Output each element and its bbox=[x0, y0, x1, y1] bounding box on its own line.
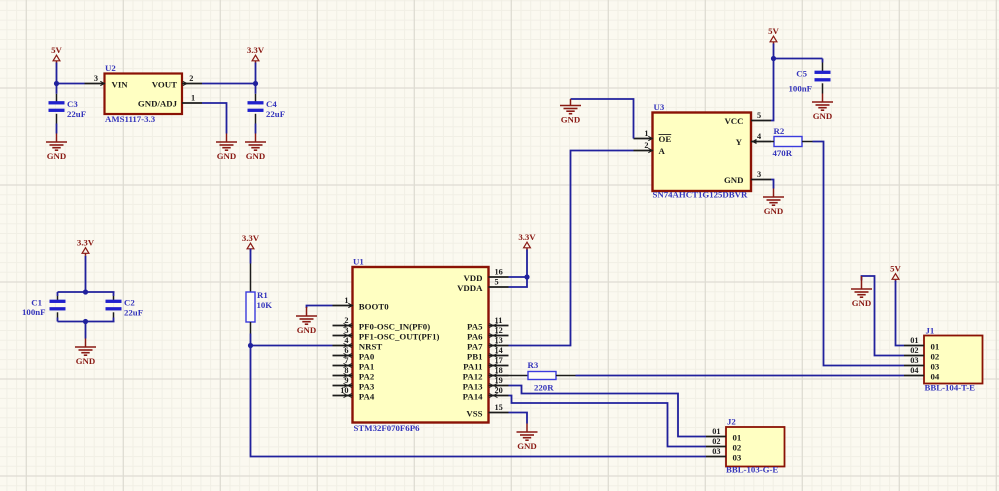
svg-text:PA1: PA1 bbox=[359, 362, 374, 372]
svg-text:GND: GND bbox=[852, 298, 872, 308]
svg-text:PA13: PA13 bbox=[463, 382, 483, 392]
svg-text:VDDA: VDDA bbox=[457, 283, 483, 293]
svg-text:SN74AHCT1G125DBVR: SN74AHCT1G125DBVR bbox=[653, 190, 748, 200]
svg-text:04: 04 bbox=[931, 372, 940, 382]
svg-text:11: 11 bbox=[495, 316, 503, 325]
svg-text:1: 1 bbox=[644, 129, 648, 138]
svg-text:4: 4 bbox=[344, 336, 348, 345]
svg-text:2: 2 bbox=[644, 141, 648, 150]
svg-text:02: 02 bbox=[910, 346, 918, 355]
svg-text:5: 5 bbox=[757, 111, 761, 120]
svg-text:3: 3 bbox=[757, 170, 761, 179]
svg-text:22uF: 22uF bbox=[266, 109, 285, 119]
svg-text:13: 13 bbox=[495, 336, 503, 345]
svg-text:U1: U1 bbox=[353, 257, 364, 267]
svg-text:PA12: PA12 bbox=[463, 372, 483, 382]
svg-text:20: 20 bbox=[495, 386, 503, 395]
svg-text:C3: C3 bbox=[67, 99, 78, 109]
svg-text:01: 01 bbox=[712, 427, 720, 436]
svg-text:NRST: NRST bbox=[359, 342, 383, 352]
svg-text:14: 14 bbox=[495, 346, 503, 355]
svg-text:GND/ADJ: GND/ADJ bbox=[138, 99, 178, 109]
svg-text:GND: GND bbox=[246, 151, 266, 161]
svg-text:A: A bbox=[659, 146, 666, 156]
svg-text:BOOT0: BOOT0 bbox=[359, 302, 389, 312]
svg-text:R1: R1 bbox=[257, 290, 268, 300]
svg-text:22uF: 22uF bbox=[124, 307, 143, 317]
svg-text:R3: R3 bbox=[528, 360, 539, 370]
svg-text:PF1-OSC_OUT(PF1): PF1-OSC_OUT(PF1) bbox=[359, 332, 440, 342]
svg-text:10K: 10K bbox=[257, 300, 273, 310]
svg-text:PA6: PA6 bbox=[467, 332, 483, 342]
svg-text:VSS: VSS bbox=[466, 409, 482, 419]
svg-text:02: 02 bbox=[931, 352, 940, 362]
svg-text:2: 2 bbox=[344, 316, 348, 325]
svg-text:17: 17 bbox=[495, 356, 503, 365]
svg-text:GND: GND bbox=[297, 325, 317, 335]
svg-text:GND: GND bbox=[517, 441, 537, 451]
svg-text:03: 03 bbox=[712, 447, 720, 456]
svg-text:100nF: 100nF bbox=[789, 83, 812, 93]
svg-text:PA11: PA11 bbox=[463, 362, 482, 372]
svg-text:6: 6 bbox=[344, 346, 348, 355]
svg-text:STM32F070F6P6: STM32F070F6P6 bbox=[354, 423, 421, 433]
svg-text:3.3V: 3.3V bbox=[77, 238, 95, 248]
svg-text:BBL-104-T-E: BBL-104-T-E bbox=[925, 383, 976, 393]
svg-text:01: 01 bbox=[910, 336, 918, 345]
svg-text:15: 15 bbox=[495, 403, 503, 412]
svg-text:03: 03 bbox=[931, 362, 940, 372]
svg-text:12: 12 bbox=[495, 326, 503, 335]
svg-text:GND: GND bbox=[813, 111, 833, 121]
svg-text:PA3: PA3 bbox=[359, 382, 375, 392]
svg-text:5: 5 bbox=[495, 277, 499, 286]
svg-text:220R: 220R bbox=[534, 383, 554, 393]
svg-text:VIN: VIN bbox=[112, 80, 129, 90]
svg-text:3: 3 bbox=[94, 74, 98, 83]
svg-text:01: 01 bbox=[931, 342, 940, 352]
svg-text:PB1: PB1 bbox=[467, 352, 483, 362]
svg-text:GND: GND bbox=[76, 356, 96, 366]
svg-text:GND: GND bbox=[561, 115, 581, 125]
svg-text:VOUT: VOUT bbox=[152, 80, 177, 90]
svg-text:2: 2 bbox=[189, 74, 193, 83]
svg-text:3.3V: 3.3V bbox=[242, 233, 260, 243]
svg-text:470R: 470R bbox=[773, 148, 793, 158]
svg-text:100nF: 100nF bbox=[22, 307, 45, 317]
svg-text:PA14: PA14 bbox=[463, 392, 483, 402]
svg-text:22uF: 22uF bbox=[67, 109, 86, 119]
svg-text:9: 9 bbox=[344, 376, 348, 385]
svg-text:5V: 5V bbox=[890, 264, 901, 274]
svg-text:C5: C5 bbox=[796, 68, 807, 78]
svg-text:PA7: PA7 bbox=[467, 342, 483, 352]
svg-text:02: 02 bbox=[733, 443, 742, 453]
svg-text:GND: GND bbox=[724, 175, 744, 185]
svg-text:04: 04 bbox=[910, 366, 918, 375]
svg-text:PA0: PA0 bbox=[359, 352, 375, 362]
svg-text:PA2: PA2 bbox=[359, 372, 375, 382]
svg-text:U2: U2 bbox=[105, 63, 116, 73]
svg-text:1: 1 bbox=[344, 296, 348, 305]
svg-text:PA4: PA4 bbox=[359, 392, 375, 402]
svg-text:4: 4 bbox=[757, 132, 761, 141]
svg-text:3: 3 bbox=[344, 326, 348, 335]
svg-text:GND: GND bbox=[217, 151, 237, 161]
svg-text:VCC: VCC bbox=[724, 116, 743, 126]
svg-text:02: 02 bbox=[712, 437, 720, 446]
svg-text:AMS1117-3.3: AMS1117-3.3 bbox=[105, 114, 156, 124]
svg-text:OE: OE bbox=[659, 134, 672, 144]
svg-text:U3: U3 bbox=[654, 102, 665, 112]
svg-text:01: 01 bbox=[733, 433, 742, 443]
svg-text:1: 1 bbox=[191, 93, 195, 102]
svg-text:GND: GND bbox=[47, 151, 67, 161]
svg-text:03: 03 bbox=[910, 356, 918, 365]
svg-text:PA5: PA5 bbox=[467, 322, 483, 332]
svg-text:C1: C1 bbox=[31, 297, 42, 307]
svg-text:5V: 5V bbox=[768, 26, 779, 36]
svg-text:GND: GND bbox=[764, 206, 784, 216]
svg-text:03: 03 bbox=[733, 453, 742, 463]
svg-text:3.3V: 3.3V bbox=[247, 45, 265, 55]
svg-text:VDD: VDD bbox=[463, 273, 482, 283]
svg-text:PF0-OSC_IN(PF0): PF0-OSC_IN(PF0) bbox=[359, 322, 430, 332]
svg-text:18: 18 bbox=[495, 366, 503, 375]
svg-text:5V: 5V bbox=[51, 45, 62, 55]
svg-text:J1: J1 bbox=[926, 326, 935, 336]
svg-text:BBL-103-G-E: BBL-103-G-E bbox=[726, 465, 778, 475]
svg-text:8: 8 bbox=[344, 366, 348, 375]
svg-text:3.3V: 3.3V bbox=[518, 232, 536, 242]
svg-text:16: 16 bbox=[495, 267, 503, 276]
svg-text:C4: C4 bbox=[266, 99, 277, 109]
svg-text:7: 7 bbox=[344, 356, 348, 365]
svg-text:C2: C2 bbox=[124, 297, 135, 307]
svg-text:R2: R2 bbox=[774, 126, 785, 136]
svg-text:Y: Y bbox=[736, 137, 743, 147]
svg-text:19: 19 bbox=[495, 376, 503, 385]
svg-text:J2: J2 bbox=[727, 417, 736, 427]
